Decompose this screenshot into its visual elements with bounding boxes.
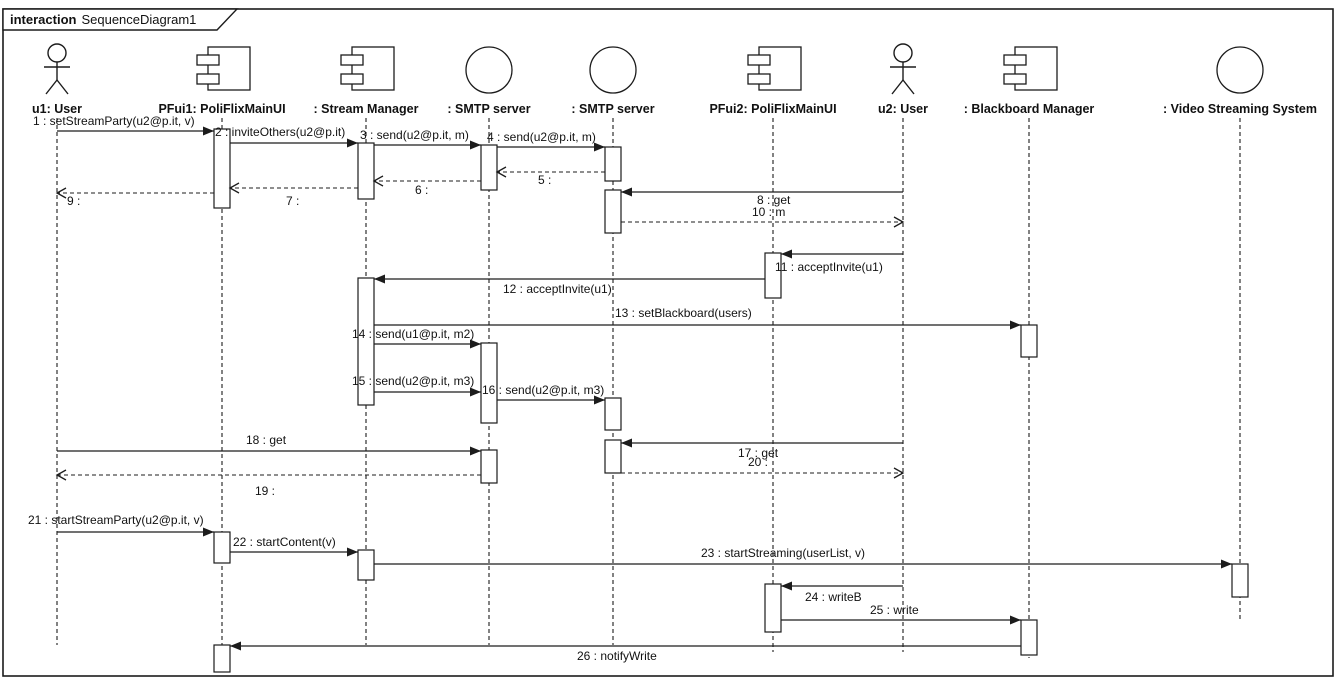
message-15-label: 15 : send(u2@p.it, m3) bbox=[352, 374, 474, 388]
message-20-label: 20 : bbox=[748, 455, 768, 469]
activation-bar-pfui1 bbox=[214, 645, 230, 672]
message-19-label: 19 : bbox=[255, 484, 275, 498]
message-10-label: 10 : m bbox=[752, 205, 785, 219]
message-5-label: 5 : bbox=[538, 173, 551, 187]
message-1-label: 1 : setStreamParty(u2@p.it, v) bbox=[33, 114, 195, 128]
sequence-diagram: interactionSequenceDiagram1 u1: UserPFui… bbox=[0, 0, 1340, 692]
message-3-label: 3 : send(u2@p.it, m) bbox=[360, 128, 469, 142]
activation-bar-smtp1 bbox=[481, 145, 497, 190]
message-24-label: 24 : writeB bbox=[805, 590, 862, 604]
message-16-label: 16 : send(u2@p.it, m3) bbox=[482, 383, 604, 397]
frame-title-name: SequenceDiagram1 bbox=[81, 12, 196, 27]
message-26-label: 26 : notifyWrite bbox=[577, 649, 657, 663]
activation-bar-sm bbox=[358, 550, 374, 580]
message-2-label: 2 : inviteOthers(u2@p.it) bbox=[215, 125, 345, 139]
frame-title-keyword: interaction bbox=[10, 12, 77, 27]
lifeline-smtp2-label: : SMTP server bbox=[571, 102, 654, 116]
message-9-label: 9 : bbox=[67, 194, 80, 208]
message-13-label: 13 : setBlackboard(users) bbox=[615, 306, 752, 320]
message-7-label: 7 : bbox=[286, 194, 299, 208]
message-21-label: 21 : startStreamParty(u2@p.it, v) bbox=[28, 513, 204, 527]
message-4-label: 4 : send(u2@p.it, m) bbox=[487, 130, 596, 144]
activation-bar-pfui2 bbox=[765, 584, 781, 632]
activation-bar-pfui1 bbox=[214, 532, 230, 563]
activation-bar-vss bbox=[1232, 564, 1248, 597]
message-12-label: 12 : acceptInvite(u1) bbox=[503, 282, 612, 296]
message-6-label: 6 : bbox=[415, 183, 428, 197]
activation-bar-smtp1 bbox=[481, 450, 497, 483]
message-23-label: 23 : startStreaming(userList, v) bbox=[701, 546, 865, 560]
sequence-diagram-canvas: interactionSequenceDiagram1 u1: UserPFui… bbox=[0, 0, 1340, 692]
lifeline-sm-label: : Stream Manager bbox=[314, 102, 419, 116]
message-22-label: 22 : startContent(v) bbox=[233, 535, 336, 549]
activation-bar-pfui1 bbox=[214, 129, 230, 208]
activation-bar-smtp2 bbox=[605, 190, 621, 233]
lifeline-bb-label: : Blackboard Manager bbox=[964, 102, 1095, 116]
message-14-label: 14 : send(u1@p.it, m2) bbox=[352, 327, 474, 341]
lifeline-u2-label: u2: User bbox=[878, 102, 928, 116]
activation-bar-bb bbox=[1021, 620, 1037, 655]
activation-bar-smtp2 bbox=[605, 147, 621, 181]
message-18-label: 18 : get bbox=[246, 433, 287, 447]
activation-bar-bb bbox=[1021, 325, 1037, 357]
frame-title: interactionSequenceDiagram1 bbox=[10, 12, 196, 27]
lifeline-vss-label: : Video Streaming System bbox=[1163, 102, 1317, 116]
lifeline-pfui2-label: PFui2: PoliFlixMainUI bbox=[709, 102, 836, 116]
activation-bar-sm bbox=[358, 143, 374, 199]
activation-bar-smtp2 bbox=[605, 440, 621, 473]
lifeline-smtp1-label: : SMTP server bbox=[447, 102, 530, 116]
activation-bar-smtp2 bbox=[605, 398, 621, 430]
message-25-label: 25 : write bbox=[870, 603, 919, 617]
message-11-label: 11 : acceptInvite(u1) bbox=[775, 260, 883, 274]
